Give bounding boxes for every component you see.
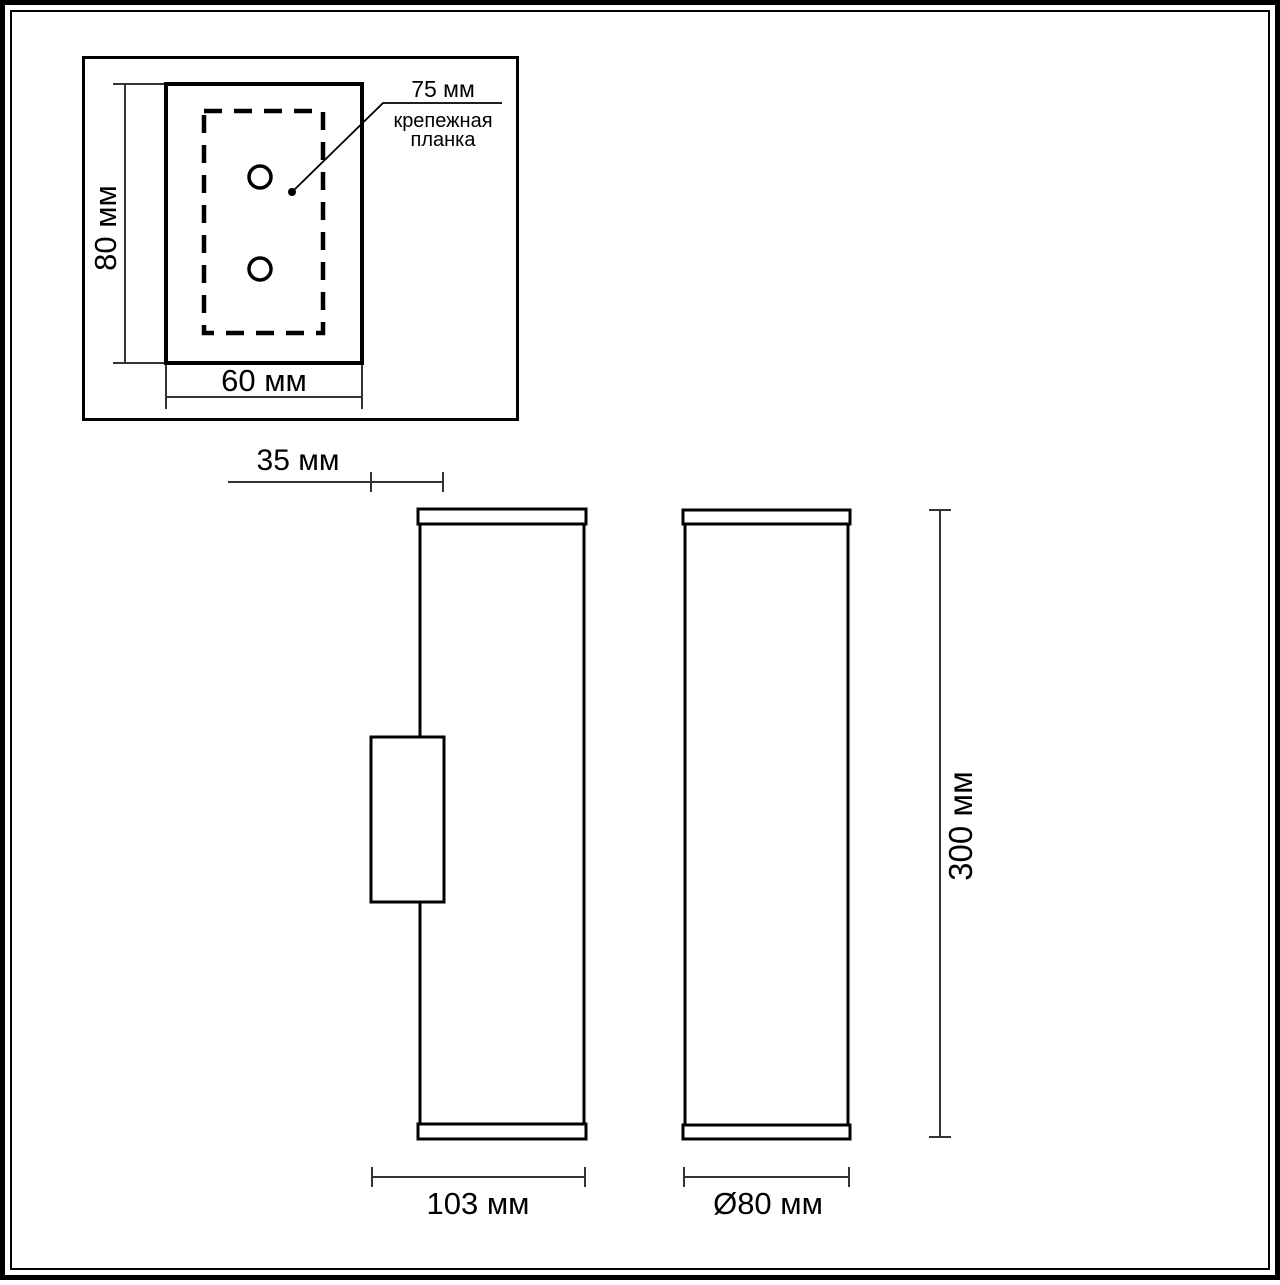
- lamp-top-cap-front: [683, 510, 850, 524]
- diameter-label: Ø80 мм: [713, 1186, 823, 1221]
- plate-height-label: 80 мм: [88, 185, 123, 271]
- hole-spacing-label: 75 мм: [411, 76, 475, 102]
- mounting-bracket-side: [371, 737, 444, 902]
- lamp-top-cap-side: [418, 509, 586, 524]
- depth-label: 103 мм: [427, 1186, 530, 1221]
- height-label: 300 мм: [942, 771, 979, 881]
- lamp-body-front: [685, 510, 848, 1139]
- lamp-front-view: [683, 510, 850, 1139]
- screw-hole-bottom-icon: [249, 258, 271, 280]
- screw-hole-top-icon: [249, 166, 271, 188]
- plate-width-label: 60 мм: [221, 363, 307, 398]
- mounting-plate-inset: 75 мм крепежная планка 80 мм 60 мм: [84, 58, 518, 420]
- technical-drawing-page: 75 мм крепежная планка 80 мм 60 мм 35 мм: [0, 0, 1280, 1280]
- callout-text-line2: планка: [411, 129, 477, 151]
- lamp-bottom-cap-front: [683, 1125, 850, 1139]
- bracket-offset-label: 35 мм: [257, 444, 340, 477]
- lamp-bottom-cap-side: [418, 1124, 586, 1139]
- wall-lamp-dimension-diagram: 75 мм крепежная планка 80 мм 60 мм 35 мм: [0, 0, 1280, 1280]
- mounting-plate-outline: [166, 84, 362, 363]
